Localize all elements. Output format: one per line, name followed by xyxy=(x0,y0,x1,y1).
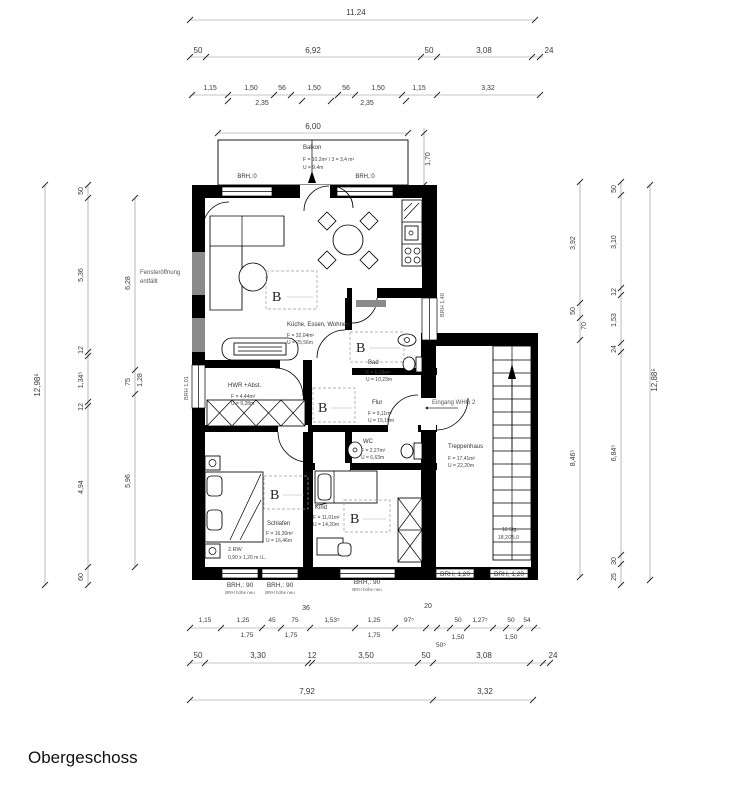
brh-label: BRH,:0 xyxy=(237,174,257,180)
nightstand xyxy=(205,456,220,470)
dim-label: 75 xyxy=(291,617,299,624)
dim-label: 3,32 xyxy=(477,687,493,696)
b-marker: B xyxy=(350,512,359,527)
room-name-wc: WC xyxy=(363,439,374,445)
dim-label: 50 xyxy=(78,187,85,195)
dim-label: 1,34⁵ xyxy=(78,372,85,389)
dim-label: 3,92 xyxy=(570,236,577,250)
dim-label: 1,50 xyxy=(371,85,385,92)
dim-label: 3,08 xyxy=(476,46,492,55)
dining-table xyxy=(333,225,363,255)
room-perimeter: U = 16,46m xyxy=(266,538,292,544)
stair-riser-label: 18,2/25,0 xyxy=(498,535,519,541)
stair-count-label: 16 Stg. xyxy=(502,527,518,533)
room-area: F = 9,11m² xyxy=(368,411,392,417)
dim-label: 1,28 xyxy=(137,373,144,387)
b-marker: B xyxy=(270,488,279,503)
dim-label: 2,35 xyxy=(255,100,269,107)
wall xyxy=(352,368,437,375)
room-area: F = 11,01m² xyxy=(313,515,340,521)
dim-label: 50 xyxy=(422,651,431,660)
room-name-flur: Flur xyxy=(372,400,382,406)
dim-line xyxy=(45,20,650,700)
room-name-balkon: Balkon xyxy=(303,145,321,151)
b-marker: B xyxy=(318,401,327,416)
dim-label-left-total: 12,98⁵ xyxy=(33,373,42,396)
dim-label: 1,50 xyxy=(244,85,258,92)
dim-label-right-total: 12,88⁵ xyxy=(650,368,659,391)
room-perimeter: U = 25,56m xyxy=(287,340,313,346)
escape-route-label: 2.RW xyxy=(228,547,242,553)
wall xyxy=(312,425,437,432)
nightstand xyxy=(205,544,220,558)
room-perimeter: U = 6,63m xyxy=(361,455,384,461)
dim-label: 24 xyxy=(611,345,618,353)
dim-label: 6,28 xyxy=(125,276,132,290)
room-perimeter: U = 9,4m xyxy=(303,165,323,171)
dim-label: 1,15 xyxy=(199,617,212,624)
dim-label: 36 xyxy=(302,605,310,612)
wall xyxy=(421,333,538,346)
dim-label: 60 xyxy=(78,573,85,581)
dim-label: 3,08 xyxy=(476,651,492,660)
radiator xyxy=(356,300,386,307)
chair xyxy=(318,212,336,230)
dim-label: 50 xyxy=(194,46,203,55)
dim-label: 8,46⁵ xyxy=(570,450,577,467)
door-arc xyxy=(317,330,345,358)
room-area: F = 16,30m² xyxy=(266,531,293,537)
room-area: F = 10,2m² / 3 = 3,4 m² xyxy=(303,157,354,163)
dim-label: 50 xyxy=(507,617,515,624)
dim-label: 12 xyxy=(308,651,317,660)
window-omitted-note-2: entfällt xyxy=(140,279,158,285)
b-marker: B xyxy=(356,341,365,356)
toilet-tank xyxy=(416,357,422,372)
dim-label: 4,94 xyxy=(78,480,85,494)
dim-label-top-total: 11.24 xyxy=(346,8,366,17)
dim-label: 1,27⁵ xyxy=(472,617,488,624)
door-gap xyxy=(300,185,330,198)
dim-label: 97⁵ xyxy=(404,617,414,624)
dim-label: 3,32 xyxy=(481,85,495,92)
b-marker: B xyxy=(272,290,281,305)
pillow xyxy=(207,510,222,530)
window-omitted-note-1: Fensteröffnung xyxy=(140,270,180,276)
chair xyxy=(360,212,378,230)
dim-label: 12 xyxy=(78,346,85,354)
dim-label: 7,92 xyxy=(299,687,315,696)
room-area: F = 4,44m² xyxy=(231,394,256,400)
closed-window-infill xyxy=(192,318,205,352)
dim-label: 50⁵ xyxy=(436,642,446,649)
desk-chair xyxy=(338,543,351,556)
brh-label: BRH,: 90 xyxy=(354,579,381,586)
dim-label: 2,35 xyxy=(360,100,374,107)
dim-label: 5,36 xyxy=(78,268,85,282)
dim-label: 1,53⁵ xyxy=(324,617,340,624)
escape-route-size: 0,90 x 1,20 m i.L. xyxy=(228,555,266,561)
room-name-bad: Bad xyxy=(368,360,379,366)
dim-label: 50 xyxy=(194,651,203,660)
tick-marks xyxy=(42,17,653,703)
dim-label: 50 xyxy=(570,307,577,315)
entrance-label: Eingang WHG 2 xyxy=(432,400,476,406)
brh-sub-label: BRH höhe neu xyxy=(225,590,255,595)
room-perimeter: U = 9,28m xyxy=(231,401,254,407)
closed-window-infill xyxy=(192,252,205,295)
dim-label: 56 xyxy=(278,85,286,92)
dim-label: 50 xyxy=(454,617,462,624)
entrance-leader-dot xyxy=(426,407,429,410)
dim-label: 12 xyxy=(78,403,85,411)
toilet xyxy=(401,444,413,458)
hwr-wardrobe xyxy=(207,400,305,426)
room-name-hwr: HWR +Abst. xyxy=(228,383,262,389)
room-perimeter: U = 10,23m xyxy=(366,377,392,383)
door-arc xyxy=(275,368,303,396)
room-name-kind: Kind xyxy=(315,505,327,511)
chair xyxy=(360,251,378,269)
dim-label: 70 xyxy=(581,322,588,330)
wall xyxy=(421,346,436,567)
dimension-labels: 11.24 50 6,92 50 3,08 24 1,15 1,50 56 1,… xyxy=(33,8,659,696)
dim-label: 25 xyxy=(611,573,618,581)
washbasin xyxy=(398,334,416,346)
dim-label: 45 xyxy=(268,617,276,624)
brh-label: BRH,: 90 xyxy=(267,582,294,589)
dim-label: 75 xyxy=(125,378,132,386)
dim-label-balcony-width: 6,00 xyxy=(305,122,321,131)
room-perimeter: U = 22,20m xyxy=(448,463,474,469)
dim-label: 3,10 xyxy=(611,235,618,249)
brh-label: BRH, 1,20 xyxy=(494,571,524,578)
washbasin xyxy=(348,442,362,458)
sideboard-inner xyxy=(234,343,286,355)
dim-label: 1,75 xyxy=(285,632,298,639)
brh-label: BRH 1,40 xyxy=(440,293,446,317)
brh-label: BRH,:0 xyxy=(355,174,375,180)
brh-label: BRH,: 90 xyxy=(227,582,254,589)
dim-label: 1,50 xyxy=(505,634,518,641)
dim-label: 1,50 xyxy=(452,634,465,641)
room-perimeter: U = 14,20m xyxy=(313,522,339,528)
coffee-table xyxy=(239,263,267,291)
dim-label: 56 xyxy=(342,85,350,92)
balcony-door-symbol xyxy=(308,171,316,183)
room-name-wohnen: Küche, Essen, Wohnen xyxy=(287,322,350,328)
dim-label: 20 xyxy=(424,603,432,610)
drawing-title: Obergeschoss xyxy=(28,748,138,767)
room-area: F = 2,27m² xyxy=(361,448,386,454)
dim-label: 54 xyxy=(523,617,531,624)
dim-label: 3,50 xyxy=(358,651,374,660)
brh-sub-label: BRH höhe neu xyxy=(352,587,382,592)
dim-label: 30 xyxy=(611,557,618,565)
toilet-tank xyxy=(414,443,422,459)
dim-label: 1,75 xyxy=(368,632,381,639)
dim-label: 1,53 xyxy=(611,313,618,327)
pillow xyxy=(318,474,331,500)
dim-label: 24 xyxy=(549,651,558,660)
room-area: F = 6,26m² xyxy=(366,370,391,376)
brh-label: BRH, 1,20 xyxy=(440,571,470,578)
brh-label: BRH 1,01 xyxy=(184,376,190,400)
room-name-treppenhaus: Treppenhaus xyxy=(448,444,483,450)
room-perimeter: U = 15,10m xyxy=(368,418,394,424)
dim-label: 24 xyxy=(545,46,554,55)
dim-label: 1,15 xyxy=(412,85,426,92)
dim-label: 3,30 xyxy=(250,651,266,660)
room-area: F = 32,04m² xyxy=(287,333,314,339)
dim-label: 1,50 xyxy=(307,85,321,92)
dim-label: 6,84⁵ xyxy=(611,445,618,462)
dim-label: 1,15 xyxy=(203,85,217,92)
door-gap xyxy=(352,288,377,298)
dim-label: 50 xyxy=(425,46,434,55)
door-gap xyxy=(388,425,418,432)
dim-label: 50 xyxy=(611,185,618,193)
room-area: F = 17,41m² xyxy=(448,456,475,462)
toilet xyxy=(403,357,415,371)
kitchen-sink xyxy=(405,226,418,240)
dim-label-balcony-depth: 1,70 xyxy=(425,152,432,166)
dimension-lines xyxy=(42,17,653,703)
dim-label: 5,96 xyxy=(125,474,132,488)
dim-label: 12 xyxy=(611,288,618,296)
dim-label: 1,25 xyxy=(368,617,381,624)
dim-label: 6,92 xyxy=(305,46,321,55)
chair xyxy=(318,251,336,269)
floorplan-drawing: 11.24 50 6,92 50 3,08 24 1,15 1,50 56 1,… xyxy=(0,0,735,782)
dim-label: 1,75 xyxy=(241,632,254,639)
wall xyxy=(531,346,538,567)
pillow xyxy=(207,476,222,496)
room-name-schlafen: Schlafen xyxy=(267,521,290,527)
dim-label: 1,25 xyxy=(237,617,250,624)
floorplan-page: 11.24 50 6,92 50 3,08 24 1,15 1,50 56 1,… xyxy=(0,0,735,782)
brh-sub-label: BRH höhe neu xyxy=(265,590,295,595)
door-gap xyxy=(315,463,350,470)
